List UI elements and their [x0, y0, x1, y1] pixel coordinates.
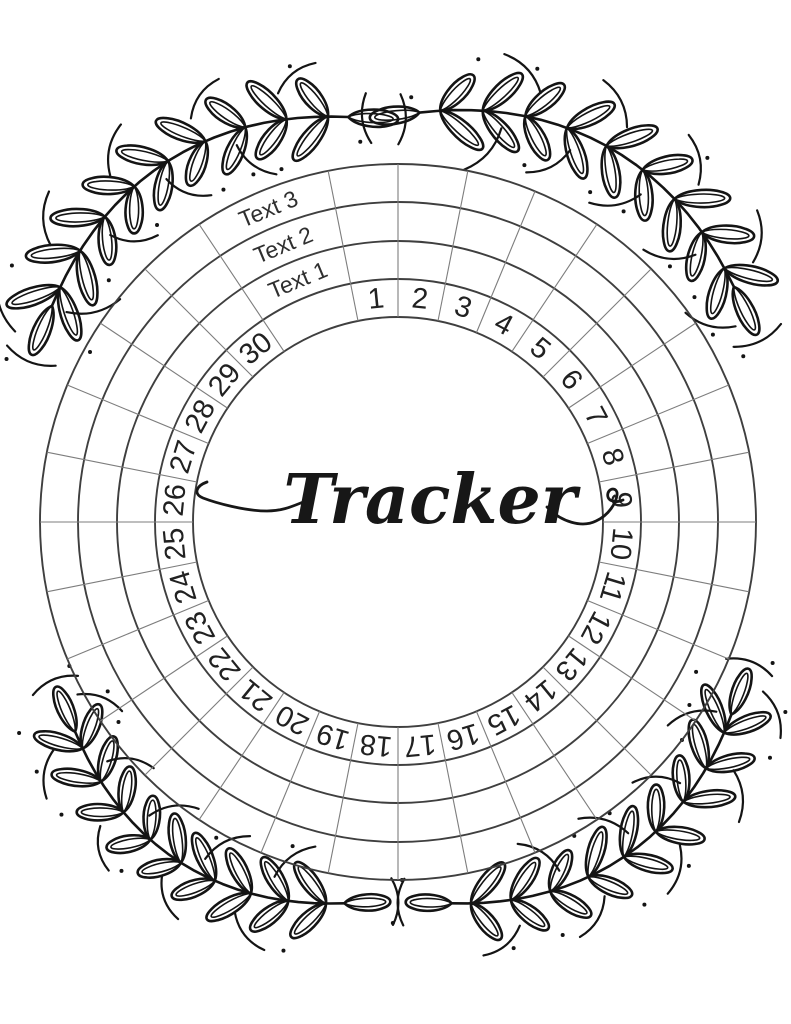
- laurel-leaf-inner-loop: [642, 157, 689, 175]
- ink-dot: [705, 156, 709, 160]
- day-number: 4: [489, 307, 518, 343]
- laurel-branch-top-left: [0, 63, 413, 366]
- laurel-leaf-loop: [50, 208, 105, 227]
- day-number: 2: [410, 282, 429, 315]
- ink-dot: [17, 731, 21, 735]
- laurel-leaf-inner-loop: [81, 808, 123, 817]
- habit-tracker-page: 1234567891011121314151617181920212223242…: [0, 0, 791, 1024]
- day-number: 10: [603, 526, 638, 561]
- laurel-leaf-loop: [563, 96, 618, 135]
- day-number: 23: [179, 606, 222, 650]
- laurel-leaf-inner-loop: [480, 74, 521, 113]
- ink-dot: [35, 770, 39, 774]
- ink-dot: [476, 57, 480, 61]
- leaf-echo-arc: [589, 194, 640, 205]
- segment-spoke: [328, 171, 358, 321]
- laurel-leaf-inner-loop: [248, 83, 289, 123]
- ink-dot: [535, 67, 539, 71]
- ink-dot: [692, 295, 696, 299]
- ink-dot: [522, 163, 526, 167]
- ink-dot: [107, 278, 111, 282]
- segment-spoke: [543, 667, 651, 775]
- ink-dot: [251, 172, 255, 176]
- laurel-leaf-loop: [724, 666, 756, 717]
- laurel-leaf-inner-loop: [652, 789, 661, 831]
- ink-dot: [116, 720, 120, 724]
- laurel-leaf-loop: [405, 894, 451, 911]
- laurel-leaf-loop: [344, 894, 390, 912]
- laurel-leaf-loop: [722, 260, 779, 290]
- leaf-echo-arc: [726, 658, 772, 676]
- leaf-echo-arc: [391, 878, 398, 925]
- ink-dot: [119, 869, 123, 873]
- day-number: 8: [595, 445, 630, 470]
- laurel-branch-bottom-right: [391, 658, 788, 955]
- laurel-leaf-loop: [616, 805, 641, 859]
- day-number: 16: [443, 716, 483, 756]
- laurel-leaf-inner-loop: [121, 147, 169, 165]
- ink-dot: [5, 357, 9, 361]
- laurel-leaf-loop: [648, 785, 665, 832]
- laurel-leaf-inner-loop: [437, 107, 481, 148]
- ink-dot: [687, 864, 691, 868]
- laurel-branch-bottom-left: [17, 664, 404, 953]
- day-number: 17: [402, 727, 437, 762]
- laurel-leaf-loop: [77, 804, 124, 820]
- laurel-leaf-inner-loop: [130, 186, 139, 228]
- day-number: 15: [482, 698, 526, 741]
- leaf-echo-arc: [77, 694, 122, 711]
- tracker-wheel: 1234567891011121314151617181920212223242…: [0, 0, 791, 1024]
- ink-dot: [214, 836, 218, 840]
- leaf-echo-arc: [108, 124, 121, 175]
- laurel-leaf-loop: [581, 825, 611, 880]
- ink-dot: [711, 333, 715, 337]
- leaf-echo-arc: [763, 692, 781, 738]
- laurel-leaf-loop: [32, 727, 85, 756]
- laurel-leaf-loop: [674, 189, 730, 207]
- day-number: 11: [593, 568, 632, 606]
- ring-label-text: Text 1: [264, 256, 331, 304]
- title-group: Tracker: [197, 460, 623, 540]
- ink-dot: [10, 263, 14, 267]
- leaf-echo-arc: [33, 676, 78, 695]
- laurel-leaf-loop: [203, 886, 255, 926]
- ink-dot: [561, 933, 565, 937]
- tracker-title: Tracker: [283, 460, 580, 540]
- day-number: 3: [451, 290, 476, 325]
- laurel-leaf-loop: [726, 283, 765, 338]
- day-number: 18: [358, 727, 393, 762]
- ring-label-text: Text 3: [235, 185, 302, 233]
- laurel-leaf-loop: [24, 302, 60, 358]
- laurel-leaf-loop: [181, 138, 213, 188]
- ink-dot: [291, 844, 295, 848]
- day-number: 28: [179, 395, 222, 439]
- day-number: 6: [554, 364, 589, 397]
- ink-dot: [687, 703, 691, 707]
- segment-spoke: [145, 667, 253, 775]
- day-number: 7: [578, 402, 614, 431]
- day-number: 5: [524, 331, 557, 366]
- laurel-leaf-loop: [49, 684, 83, 735]
- day-number: 12: [574, 606, 617, 650]
- laurel-leaf-loop: [125, 186, 142, 233]
- ink-dot: [668, 264, 672, 268]
- leaf-echo-arc: [526, 150, 570, 172]
- ink-dot: [741, 354, 745, 358]
- day-number: 27: [164, 437, 204, 477]
- laurel-leaf-loop: [704, 750, 756, 776]
- ink-dot: [768, 756, 772, 760]
- day-number: 24: [164, 567, 204, 607]
- ink-dot: [694, 670, 698, 674]
- ink-dot: [622, 209, 626, 213]
- ink-dot: [106, 689, 110, 693]
- ink-dot: [588, 190, 592, 194]
- ring-labels: Text 1Text 2Text 3: [235, 185, 331, 304]
- ink-dot: [155, 223, 159, 227]
- day-number: 1: [366, 282, 385, 315]
- laurel-leaf-loop: [217, 124, 253, 178]
- day-number: 25: [158, 526, 193, 561]
- ink-dot: [279, 167, 283, 171]
- ink-dot: [783, 710, 787, 714]
- day-number: 19: [313, 716, 353, 756]
- laurel-leaf-loop: [82, 176, 134, 195]
- day-number: 20: [271, 698, 315, 741]
- leaf-echo-arc: [668, 845, 682, 894]
- leaf-echo-arc: [110, 235, 157, 241]
- ink-dot: [771, 661, 775, 665]
- ink-dot: [358, 140, 362, 144]
- ink-dot: [281, 949, 285, 953]
- ink-dot: [642, 903, 646, 907]
- laurel-leaf-loop: [142, 795, 161, 840]
- ink-dot: [88, 350, 92, 354]
- day-number: 26: [158, 482, 193, 517]
- segment-spoke: [145, 269, 253, 377]
- leaf-echo-arc: [689, 135, 701, 185]
- ink-dot: [512, 946, 516, 950]
- laurel-leaf-loop: [559, 125, 592, 181]
- leaf-echo-arc: [161, 875, 178, 919]
- ink-dot: [288, 64, 292, 68]
- ink-dot: [221, 188, 225, 192]
- ink-dot: [409, 95, 413, 99]
- ink-dot: [59, 813, 63, 817]
- segment-spoke: [543, 269, 651, 377]
